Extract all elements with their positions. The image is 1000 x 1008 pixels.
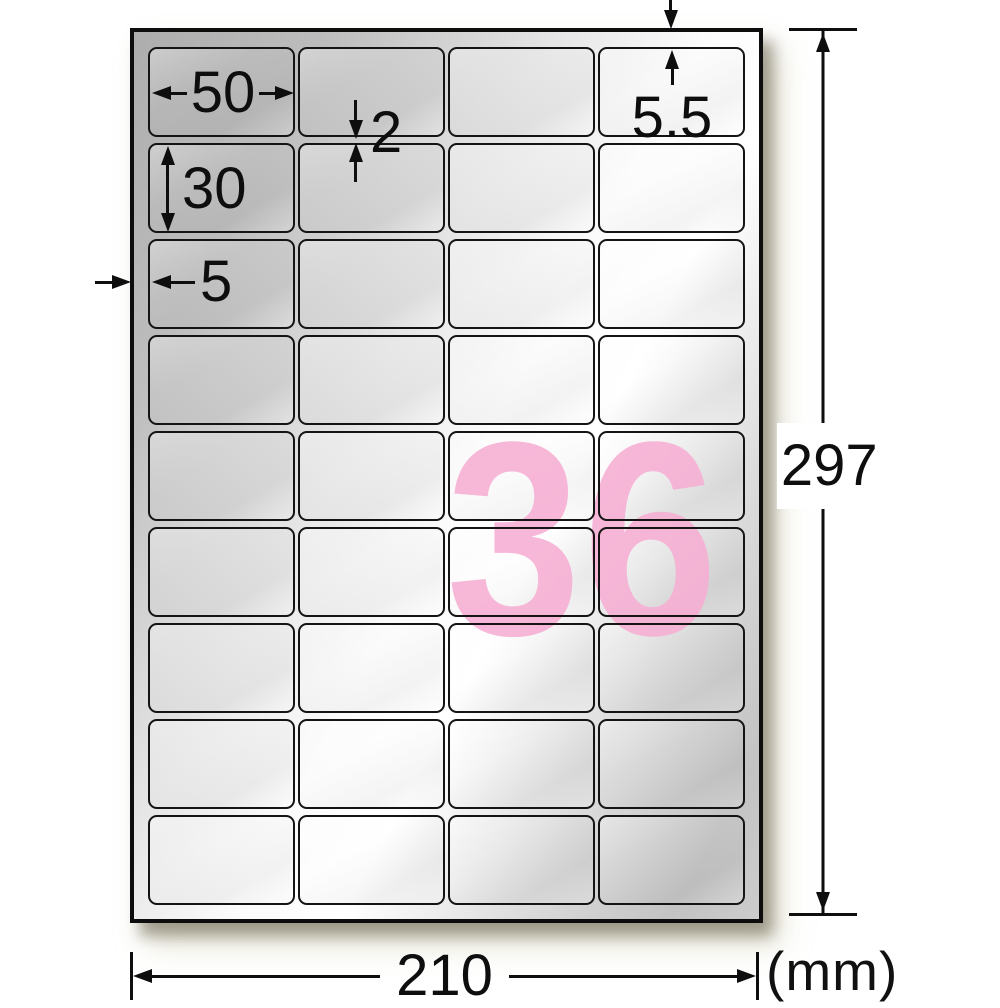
dim-line (259, 92, 275, 95)
label-cell (598, 335, 745, 425)
arrow-left-icon (133, 969, 152, 983)
label-cell (148, 815, 295, 905)
dim-line (160, 146, 175, 232)
arrow-up-icon (665, 50, 679, 69)
label-cell (598, 143, 745, 233)
dim-label-width-value: 50 (187, 64, 260, 122)
dim-label-height: 30 (160, 146, 247, 232)
pointer-top-edge (663, 0, 678, 29)
label-cell (298, 431, 445, 521)
dim-line (171, 92, 187, 95)
label-cell (298, 815, 445, 905)
dim-top-margin: 5.5 (605, 50, 739, 147)
arrow-right-icon (737, 969, 756, 983)
dim-line (509, 975, 737, 978)
arrow-up-icon (349, 143, 363, 162)
dim-line (354, 162, 357, 182)
label-cell (448, 239, 595, 329)
label-cell (448, 623, 595, 713)
arrow-down-icon (161, 213, 175, 232)
arrow-right-icon (275, 86, 294, 100)
arrow-down-icon (664, 10, 678, 29)
label-cell (448, 47, 595, 137)
dim-label-width: 50 (152, 63, 294, 123)
label-cell (448, 815, 595, 905)
dim-sheet-width: 210 (130, 952, 759, 1000)
label-cell (148, 623, 295, 713)
label-cell (598, 527, 745, 617)
dim-line (171, 281, 195, 284)
label-cell (298, 335, 445, 425)
label-cell (598, 239, 745, 329)
dim-sheet-height-value: 297 (777, 423, 882, 509)
label-cell (598, 431, 745, 521)
dim-row-gap (348, 100, 363, 182)
dim-sheet-height: 297 (789, 28, 857, 916)
arrow-right-icon (112, 275, 131, 289)
arrow-down-icon (349, 120, 363, 139)
label-cell (298, 719, 445, 809)
label-cell (148, 431, 295, 521)
unit-note: (mm) (766, 944, 898, 999)
label-cell (148, 527, 295, 617)
arrow-left-icon (152, 275, 171, 289)
dim-line (166, 165, 169, 213)
pointer-left-edge (95, 275, 131, 289)
dim-top-margin-value: 5.5 (632, 89, 713, 147)
arrow-down-icon (816, 892, 830, 911)
label-cell (598, 719, 745, 809)
label-cell (298, 623, 445, 713)
label-cell (448, 143, 595, 233)
dim-side-margin-value: 5 (200, 253, 232, 311)
label-cell (448, 431, 595, 521)
label-cell (298, 527, 445, 617)
dim-line (152, 975, 380, 978)
label-cell (598, 815, 745, 905)
arrow-up-icon (161, 146, 175, 165)
dim-row-gap-value: 2 (370, 104, 402, 162)
dim-line (671, 69, 674, 85)
dim-cap (789, 913, 857, 916)
dim-side-margin: 5 (152, 255, 232, 309)
dim-sheet-width-value: 210 (380, 947, 509, 1005)
dim-line (669, 0, 672, 10)
arrow-left-icon (152, 86, 171, 100)
dim-label-height-value: 30 (182, 160, 247, 218)
label-cell (598, 623, 745, 713)
label-cell (448, 527, 595, 617)
label-cell (298, 239, 445, 329)
label-cell (148, 719, 295, 809)
dim-line (95, 281, 112, 284)
dim-tick (756, 952, 759, 1000)
dim-line (354, 100, 357, 120)
label-cell (448, 719, 595, 809)
arrow-up-icon (816, 33, 830, 52)
label-cell (448, 335, 595, 425)
label-cell (148, 335, 295, 425)
